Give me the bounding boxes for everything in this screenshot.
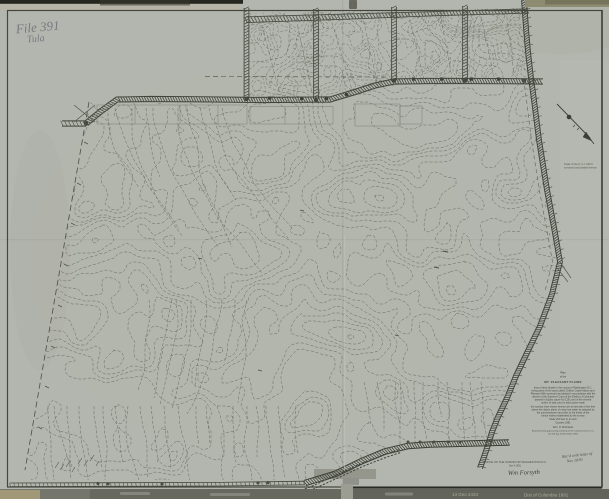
svg-text:surveyed and platted hereon: surveyed and platted hereon — [564, 166, 597, 170]
svg-text:of the: of the — [560, 376, 567, 379]
svg-text:Wm. P. Richards: Wm. P. Richards — [553, 425, 574, 429]
svg-text:this 4th day of November 1891: this 4th day of November 1891 — [548, 433, 579, 436]
svg-text:OFFICE OF THE SURVEYOR WASHING: OFFICE OF THE SURVEYOR WASHINGTON D.C. — [483, 460, 547, 464]
svg-text:Wm Forsyth: Wm Forsyth — [508, 469, 540, 477]
svg-text:MT. PLEASANT PLAINS: MT. PLEASANT PLAINS — [544, 380, 581, 384]
svg-text:Examined and approved by autho: Examined and approved by authority of th… — [532, 430, 595, 433]
svg-text:Plan: Plan — [560, 371, 566, 375]
svg-text:orders of said court in said c: orders of said court in said cause made — [541, 402, 585, 405]
svg-text:Scale of feet 1 in = 200 ft: Scale of feet 1 in = 200 ft — [564, 162, 593, 166]
svg-text:Dist of Columbia 1891: Dist of Columbia 1891 — [524, 493, 569, 498]
svg-text:Tula: Tula — [26, 33, 45, 46]
svg-text:Nov 4 1891: Nov 4 1891 — [509, 466, 521, 468]
svg-text:14 Geo 2434: 14 Geo 2434 — [452, 492, 479, 497]
